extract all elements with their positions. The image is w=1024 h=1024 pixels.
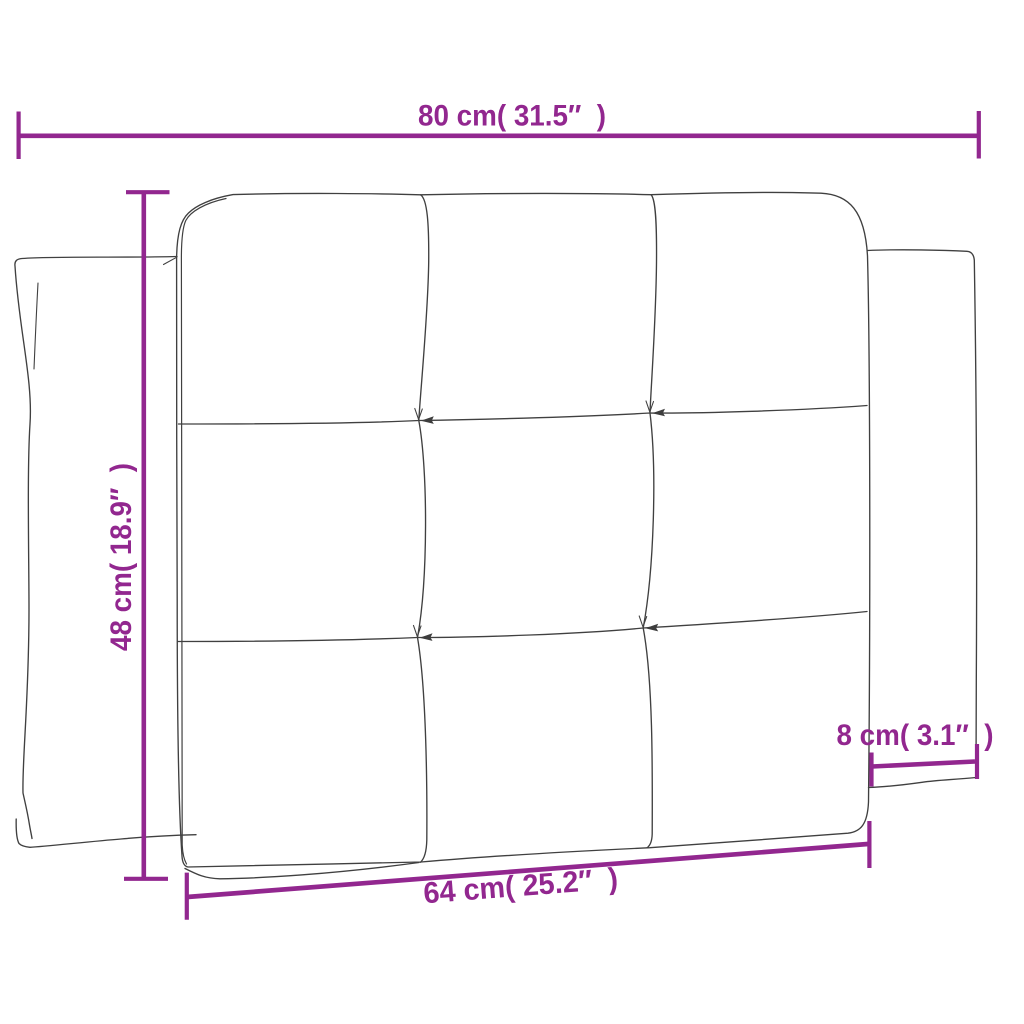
svg-text:8 cm( 3.1″ ): 8 cm( 3.1″ ) (837, 719, 994, 752)
svg-text:80 cm( 31.5″ ): 80 cm( 31.5″ ) (418, 100, 606, 133)
svg-text:48 cm( 18.9″ ): 48 cm( 18.9″ ) (105, 463, 138, 651)
